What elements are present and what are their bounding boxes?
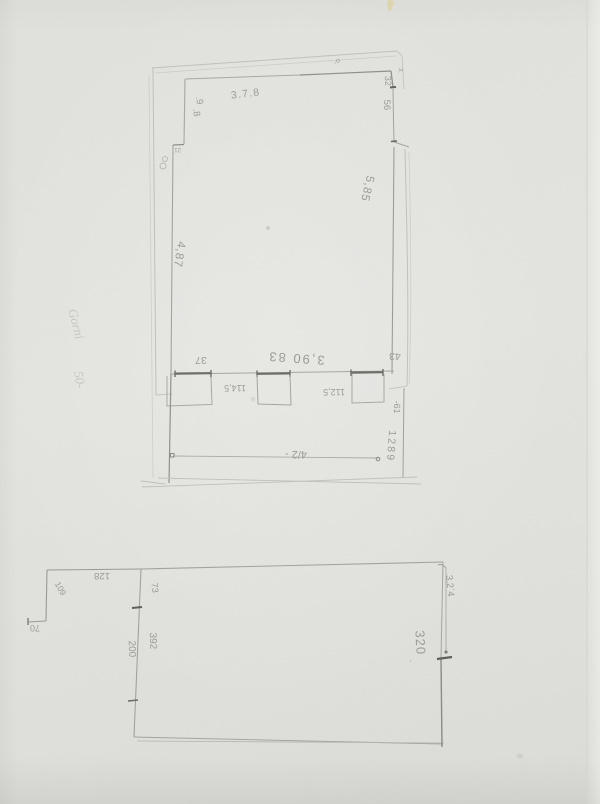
svg-text:1289: 1289 [384,430,398,463]
svg-text:37: 37 [195,354,207,366]
svg-text:50-: 50- [71,370,89,390]
svg-text:73: 73 [150,582,161,593]
svg-text:.9: .9 [193,96,205,105]
svg-text:32: 32 [383,76,393,86]
svg-text:ʿ: ʿ [409,659,412,669]
svg-text:320: 320 [412,630,428,655]
svg-text:21: 21 [174,146,181,152]
svg-text:o': o' [335,57,341,64]
svg-text:-61: -61 [392,400,402,413]
svg-text:3,: 3, [397,68,403,74]
svg-text:56: 56 [381,99,392,110]
svg-text:.8: .8 [190,108,202,117]
svg-text:128: 128 [94,570,110,581]
svg-text:3,2ʾ4: 3,2ʾ4 [443,575,456,598]
svg-text:114,5: 114,5 [224,383,246,393]
svg-text:200: 200 [126,640,138,657]
svg-text:392: 392 [147,632,159,649]
svg-text:70: 70 [30,623,40,633]
svg-text:43: 43 [389,350,401,362]
svg-text:112,5: 112,5 [323,387,345,397]
svg-text:4/2 -: 4/2 - [285,448,307,460]
